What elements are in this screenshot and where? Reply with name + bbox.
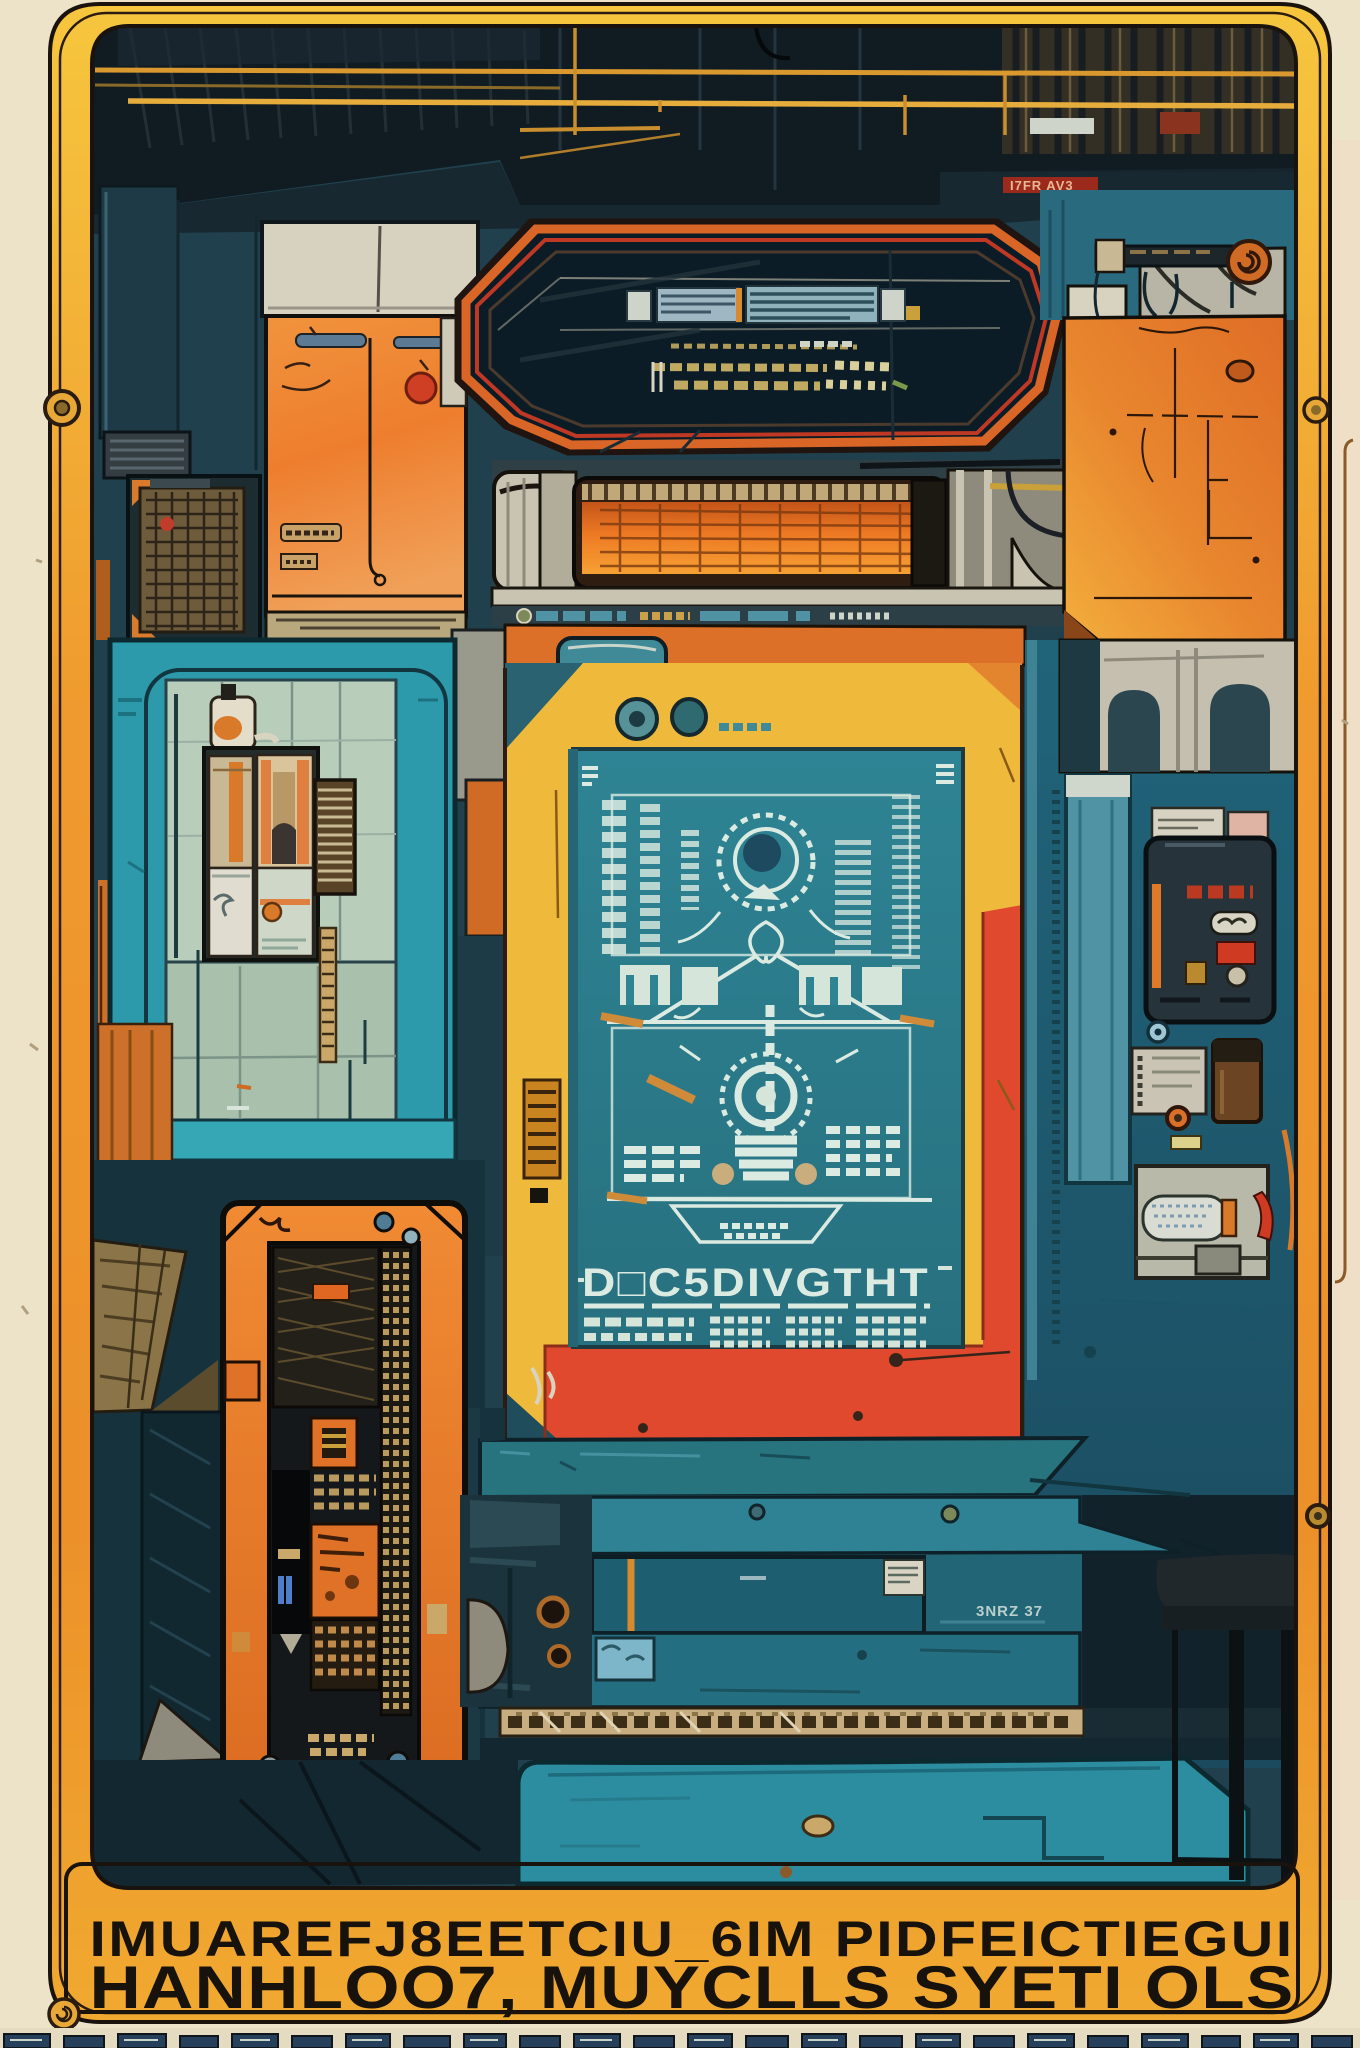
- svg-text:D□C5DIVGTHT: D□C5DIVGTHT: [582, 1261, 930, 1305]
- svg-text:HANHLOO7, MUYCLLS SYETI OLS: HANHLOO7, MUYCLLS SYETI OLS: [90, 1954, 1295, 2021]
- svg-text:3NRZ 37: 3NRZ 37: [976, 1603, 1043, 1620]
